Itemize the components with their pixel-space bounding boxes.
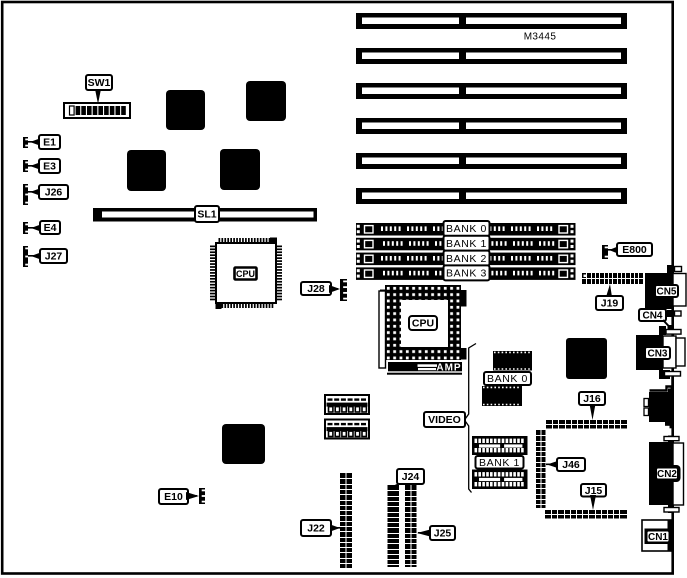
svg-text:J24: J24 — [402, 471, 420, 483]
svg-text:J27: J27 — [45, 251, 63, 263]
svg-text:J22: J22 — [307, 523, 325, 535]
svg-text:BANK 3: BANK 3 — [446, 268, 487, 280]
svg-text:BANK 2: BANK 2 — [446, 253, 487, 265]
svg-text:CN3: CN3 — [647, 349, 667, 360]
svg-text:BANK 1: BANK 1 — [446, 238, 487, 250]
svg-text:CN1: CN1 — [648, 532, 668, 543]
svg-text:J28: J28 — [307, 283, 325, 295]
svg-text:AMP: AMP — [436, 363, 461, 374]
svg-text:SW1: SW1 — [88, 77, 111, 89]
svg-text:VIDEO: VIDEO — [428, 414, 461, 426]
svg-text:CN2: CN2 — [657, 469, 677, 480]
svg-text:BANK 0: BANK 0 — [487, 373, 528, 385]
svg-text:M3445: M3445 — [524, 32, 557, 43]
svg-text:E3: E3 — [43, 161, 56, 173]
svg-text:SL1: SL1 — [197, 209, 216, 221]
svg-text:E4: E4 — [44, 222, 57, 234]
svg-text:BANK 0: BANK 0 — [446, 223, 487, 235]
svg-text:E1: E1 — [43, 137, 56, 149]
svg-text:J26: J26 — [45, 187, 63, 199]
svg-text:J25: J25 — [434, 528, 452, 540]
svg-text:J19: J19 — [601, 298, 619, 310]
svg-text:E10: E10 — [164, 491, 183, 503]
svg-text:CN4: CN4 — [642, 311, 662, 322]
svg-text:CPU: CPU — [236, 269, 255, 279]
svg-text:E800: E800 — [622, 244, 647, 256]
svg-text:J46: J46 — [562, 459, 580, 471]
svg-text:BANK 1: BANK 1 — [479, 457, 520, 469]
svg-text:J16: J16 — [583, 393, 601, 405]
svg-text:CPU: CPU — [412, 318, 434, 330]
svg-text:CN5: CN5 — [656, 287, 676, 298]
